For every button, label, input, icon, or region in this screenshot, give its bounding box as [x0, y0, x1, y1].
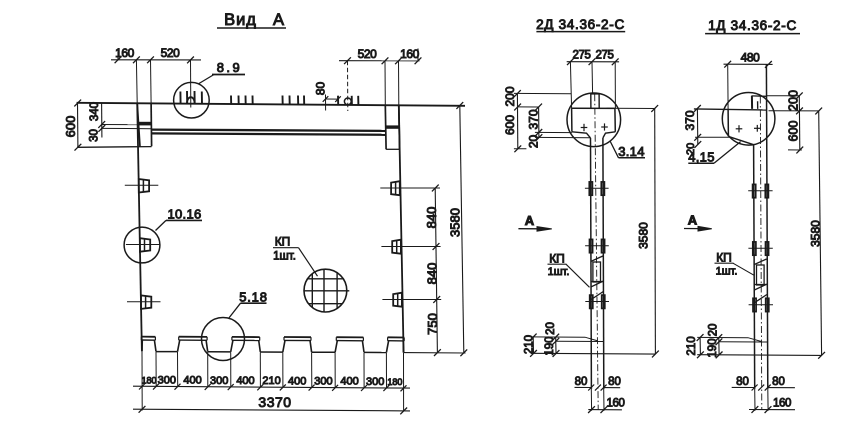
svg-text:160: 160	[607, 397, 625, 409]
svg-text:300: 300	[210, 375, 228, 387]
svg-text:80: 80	[314, 82, 328, 96]
svg-text:520: 520	[161, 46, 181, 60]
svg-text:520: 520	[358, 47, 378, 61]
svg-text:80: 80	[575, 376, 588, 388]
svg-text:8.9: 8.9	[217, 60, 243, 75]
svg-text:840: 840	[424, 263, 439, 285]
svg-text:20: 20	[545, 322, 557, 335]
svg-text:А: А	[273, 11, 284, 29]
svg-text:400: 400	[288, 375, 306, 387]
svg-text:20: 20	[527, 135, 541, 149]
svg-text:600: 600	[63, 116, 78, 138]
svg-text:80: 80	[736, 376, 749, 388]
svg-text:400: 400	[183, 375, 201, 387]
svg-text:3.14: 3.14	[618, 144, 645, 159]
svg-text:30: 30	[89, 129, 101, 142]
svg-text:А: А	[525, 213, 535, 228]
svg-text:3580: 3580	[636, 222, 650, 249]
svg-text:160: 160	[400, 47, 420, 61]
svg-text:160: 160	[115, 46, 135, 60]
svg-text:80: 80	[608, 376, 621, 388]
svg-text:400: 400	[340, 376, 358, 388]
svg-text:370: 370	[683, 110, 697, 130]
svg-text:600: 600	[503, 115, 517, 135]
svg-text:600: 600	[787, 121, 801, 142]
svg-text:210: 210	[524, 335, 536, 354]
svg-text:210: 210	[686, 336, 698, 355]
svg-text:5.18: 5.18	[239, 290, 268, 305]
svg-text:400: 400	[236, 375, 254, 387]
svg-text:190: 190	[707, 338, 719, 357]
svg-text:300: 300	[314, 376, 332, 388]
svg-text:370: 370	[527, 109, 541, 129]
svg-text:1шт.: 1шт.	[716, 266, 738, 278]
svg-text:1Д 34.36-2-С: 1Д 34.36-2-С	[708, 18, 797, 33]
svg-text:180: 180	[141, 375, 156, 385]
svg-text:180: 180	[387, 377, 402, 387]
svg-text:КП: КП	[716, 250, 732, 264]
svg-text:20: 20	[708, 324, 720, 337]
svg-text:А: А	[688, 213, 698, 228]
svg-text:КП: КП	[549, 251, 565, 265]
svg-text:210: 210	[262, 375, 280, 387]
svg-text:340: 340	[89, 102, 101, 121]
svg-text:190: 190	[544, 336, 556, 355]
svg-text:3580: 3580	[808, 220, 822, 247]
svg-text:160: 160	[773, 398, 791, 410]
svg-text:200: 200	[787, 90, 801, 111]
svg-text:300: 300	[158, 374, 176, 386]
svg-text:КП: КП	[275, 235, 291, 249]
svg-text:300: 300	[366, 376, 384, 388]
svg-text:80: 80	[772, 376, 785, 388]
svg-text:840: 840	[424, 207, 439, 229]
svg-text:20: 20	[685, 143, 697, 155]
svg-text:1шт.: 1шт.	[548, 266, 570, 278]
svg-text:480: 480	[741, 50, 761, 64]
svg-text:2Д 34.36-2-С: 2Д 34.36-2-С	[536, 17, 625, 32]
svg-text:200: 200	[503, 86, 517, 106]
svg-text:10.16: 10.16	[167, 206, 201, 221]
svg-text:750: 750	[425, 313, 440, 335]
svg-text:275: 275	[573, 50, 591, 62]
svg-text:1шт.: 1шт.	[273, 251, 296, 263]
svg-text:275: 275	[596, 50, 614, 62]
svg-text:3580: 3580	[447, 208, 462, 237]
svg-text:3370: 3370	[258, 394, 291, 410]
svg-text:Вид: Вид	[224, 11, 257, 29]
